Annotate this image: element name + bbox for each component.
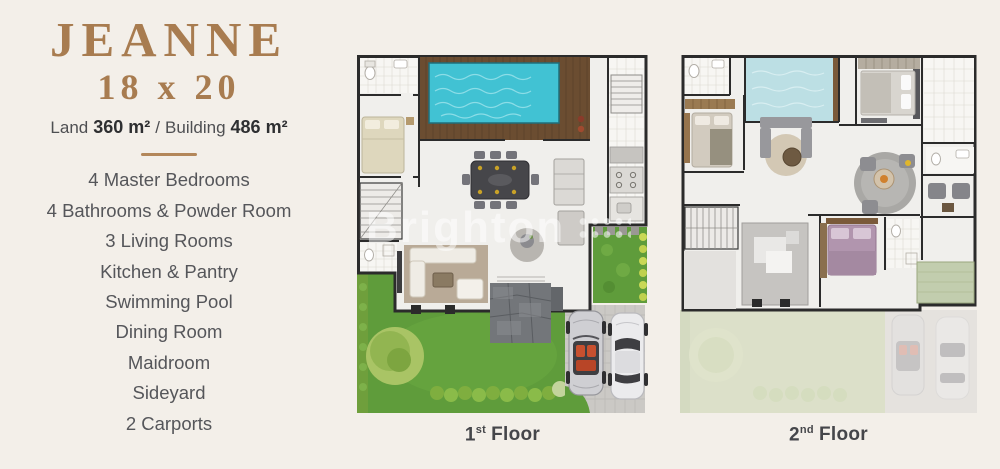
- floor-ordinal: nd: [800, 424, 814, 436]
- feature-item: Swimming Pool: [0, 287, 338, 317]
- living-room: [397, 245, 488, 303]
- toilet-icon: [365, 249, 374, 261]
- bathroom-lower: [887, 219, 919, 268]
- bathroom-2: [360, 243, 397, 271]
- feature-item: Kitchen & Pantry: [0, 257, 338, 287]
- deck-pot: [578, 126, 584, 132]
- toilet-icon: [365, 67, 375, 80]
- round-table-icon: [783, 148, 801, 166]
- feature-item: Sideyard: [0, 378, 338, 408]
- deck-pot: [578, 116, 584, 122]
- floor-plan-2: [680, 55, 977, 415]
- feature-item: 4 Master Bedrooms: [0, 165, 338, 195]
- sink-icon: [712, 60, 724, 68]
- sitting-area: [854, 152, 916, 214]
- bathroom-1: [360, 58, 417, 93]
- area-separator: /: [155, 118, 160, 138]
- building-label: Building: [165, 118, 226, 138]
- pool-void: [745, 58, 839, 122]
- brochure-page: JEANNE 18 x 20 Land 360 m² / Building 48…: [0, 0, 1000, 469]
- armchair-icon: [952, 183, 970, 199]
- feature-item: Dining Room: [0, 317, 338, 347]
- area-line: Land 360 m² / Building 486 m²: [50, 117, 287, 138]
- stairs: [360, 183, 402, 239]
- kitchen-island: [554, 159, 584, 245]
- bush: [366, 327, 424, 385]
- balcony: [917, 262, 974, 303]
- wall-stub: [445, 305, 455, 314]
- bedroom-top-right: [858, 58, 920, 123]
- floor-number: 2: [789, 424, 800, 445]
- floor-ordinal: st: [476, 424, 486, 436]
- divider: [141, 153, 197, 156]
- wall-stub: [411, 305, 421, 314]
- sofa-icon: [760, 117, 812, 128]
- car-sedan: [608, 313, 648, 399]
- ground-floor-ghost: [680, 310, 977, 413]
- feature-item: 3 Living Rooms: [0, 226, 338, 256]
- armchair-icon: [928, 183, 946, 199]
- hallway-tiles: [924, 58, 974, 173]
- floor-1-label: 1stFloor: [357, 424, 648, 446]
- feature-item: 4 Bathrooms & Powder Room: [0, 196, 338, 226]
- toilet-icon: [932, 153, 941, 165]
- stone-path: [490, 277, 551, 343]
- land-value: 360 m²: [93, 117, 150, 138]
- toilet-icon: [892, 225, 901, 237]
- toilet-icon: [689, 65, 699, 78]
- car-convertible: [566, 311, 606, 395]
- stairs: [685, 207, 738, 249]
- info-panel: JEANNE 18 x 20 Land 360 m² / Building 48…: [0, 0, 338, 439]
- page-title: JEANNE: [0, 14, 338, 65]
- floor-word: Floor: [819, 424, 868, 445]
- building-value: 486 m²: [231, 117, 288, 138]
- floor-2-label: 2ndFloor: [680, 424, 977, 446]
- feature-item: Maidroom: [0, 348, 338, 378]
- sideyard: [593, 227, 647, 303]
- floor-word: Floor: [491, 424, 540, 445]
- land-label: Land: [50, 118, 88, 138]
- lot-dimensions: 18 x 20: [0, 66, 338, 108]
- tv-console-icon: [397, 251, 402, 293]
- foyer: [510, 228, 544, 262]
- landing: [684, 251, 736, 309]
- coffee-table-icon: [433, 273, 453, 287]
- sink-icon: [394, 60, 407, 68]
- swimming-pool: [429, 63, 559, 123]
- floor-number: 1: [465, 424, 476, 445]
- feature-item: 2 Carports: [0, 409, 338, 439]
- bathroom-upper: [685, 58, 729, 94]
- feature-list: 4 Master Bedrooms 4 Bathrooms & Powder R…: [0, 165, 338, 439]
- roof-below: [742, 223, 808, 307]
- floor-plan-1: [357, 55, 648, 415]
- sink-icon: [956, 150, 969, 158]
- bedroom-bottom: [820, 218, 878, 278]
- kitchen: [610, 147, 643, 221]
